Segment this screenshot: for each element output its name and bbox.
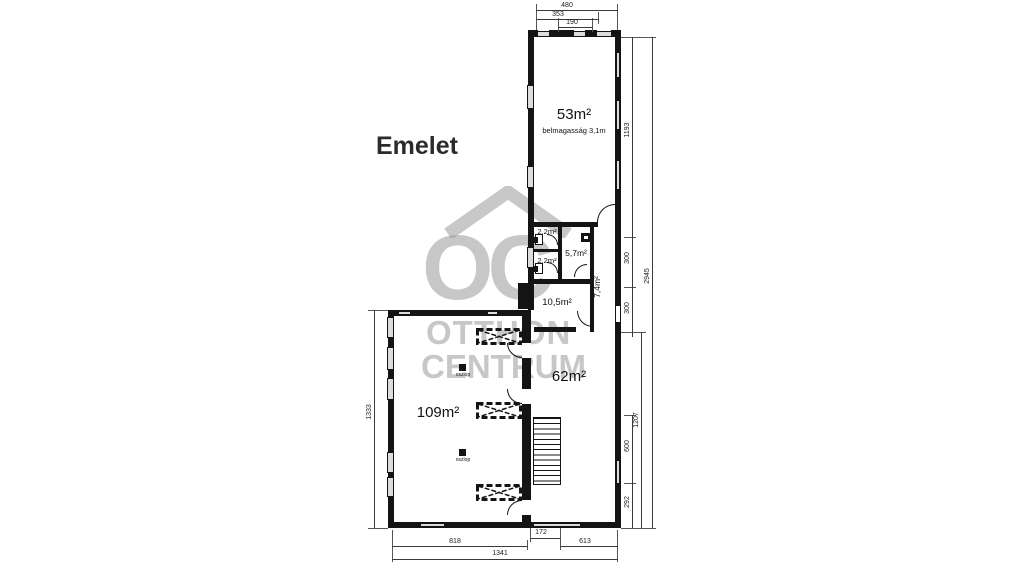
window [387, 378, 394, 400]
room-label-74: 7,4m² [592, 272, 602, 302]
wall [549, 30, 574, 37]
dimension-line [530, 538, 561, 539]
toilet-fixture [534, 237, 538, 243]
room-label-62: 62m² [544, 368, 594, 385]
extension-line [621, 37, 656, 38]
room-label-57: 5,7m² [562, 248, 590, 258]
dimension-label: 1207 [633, 405, 641, 435]
sink-fixture [584, 236, 588, 239]
extension-line [368, 528, 388, 529]
door-opening [522, 389, 531, 404]
wall-pier [518, 283, 530, 309]
window [387, 452, 394, 473]
door-opening [522, 500, 531, 515]
room-label-22b: 2,2m² [534, 256, 560, 265]
dimension-label: 1193 [624, 115, 632, 145]
floorplan: Emelet [0, 0, 1024, 574]
extension-line [621, 332, 646, 333]
dimension-label: 292 [624, 487, 632, 517]
dimension-label: 353 [538, 11, 578, 19]
dimension-label: 600 [624, 431, 632, 461]
extension-line [368, 310, 388, 311]
dimension-line [558, 27, 593, 28]
skylight-marker [476, 402, 522, 419]
dimension-line [374, 310, 375, 528]
dimension-label: 190 [552, 19, 592, 27]
extension-line [592, 18, 593, 32]
dimension-line [392, 546, 528, 547]
column-label: oszlop [448, 372, 478, 378]
window [533, 523, 581, 527]
wall [534, 249, 558, 252]
wall [534, 327, 576, 332]
room-note-53: belmagasság 3,1m [534, 126, 614, 135]
extension-line [624, 483, 636, 484]
column-label: oszlop [448, 457, 478, 463]
extension-line [617, 4, 618, 30]
dimension-label: 300 [624, 243, 632, 273]
dimension-label: 480 [547, 2, 587, 10]
window [527, 85, 534, 109]
extension-line [536, 4, 537, 30]
door-opening [616, 306, 620, 322]
dimension-label: 300 [624, 293, 632, 323]
dimension-line [392, 559, 618, 560]
door-arc [507, 343, 522, 358]
wall-fixture [577, 280, 590, 284]
column-marker [459, 449, 466, 456]
door-arc [574, 264, 587, 277]
dimension-label: 818 [435, 538, 475, 546]
toilet-fixture [534, 266, 538, 272]
window [387, 477, 394, 497]
window [616, 52, 620, 78]
extension-line [624, 287, 636, 288]
dimension-label: 172 [521, 529, 561, 537]
room-label-109: 109m² [408, 404, 468, 421]
dimension-line [560, 546, 618, 547]
wall [585, 30, 597, 37]
window [529, 31, 620, 37]
window [420, 523, 445, 527]
door-opening [522, 343, 531, 358]
room-label-105: 10,5m² [540, 297, 574, 308]
window [616, 460, 620, 484]
extension-line [527, 540, 528, 550]
dimension-label: 2945 [644, 261, 652, 291]
window [487, 311, 498, 315]
door-arc [597, 204, 615, 222]
floorplan-canvas: OC OTTHON CENTRUM Emelet [0, 0, 1024, 574]
door-arc [577, 311, 593, 327]
window [527, 166, 534, 188]
dimension-label: 1333 [366, 397, 374, 427]
skylight-marker [476, 328, 522, 345]
extension-line [624, 237, 636, 238]
dimension-line [652, 37, 653, 528]
staircase [533, 417, 561, 485]
window [387, 317, 394, 338]
window [616, 160, 620, 190]
door-arc [507, 500, 522, 515]
room-label-53: 53m² [544, 106, 604, 123]
column-marker [459, 364, 466, 371]
extension-line [598, 12, 599, 24]
dimension-line [641, 332, 642, 528]
window [398, 311, 411, 315]
dimension-label: 613 [565, 538, 605, 546]
window [527, 247, 534, 268]
plan-title: Emelet [376, 132, 458, 161]
window [387, 347, 394, 370]
skylight-marker [476, 484, 522, 501]
room-label-22a: 2,2m² [534, 227, 560, 236]
dimension-line [632, 37, 633, 337]
extension-line [621, 528, 656, 529]
wall-fixture [536, 280, 544, 284]
dimension-label: 1341 [480, 550, 520, 558]
window [616, 100, 620, 130]
